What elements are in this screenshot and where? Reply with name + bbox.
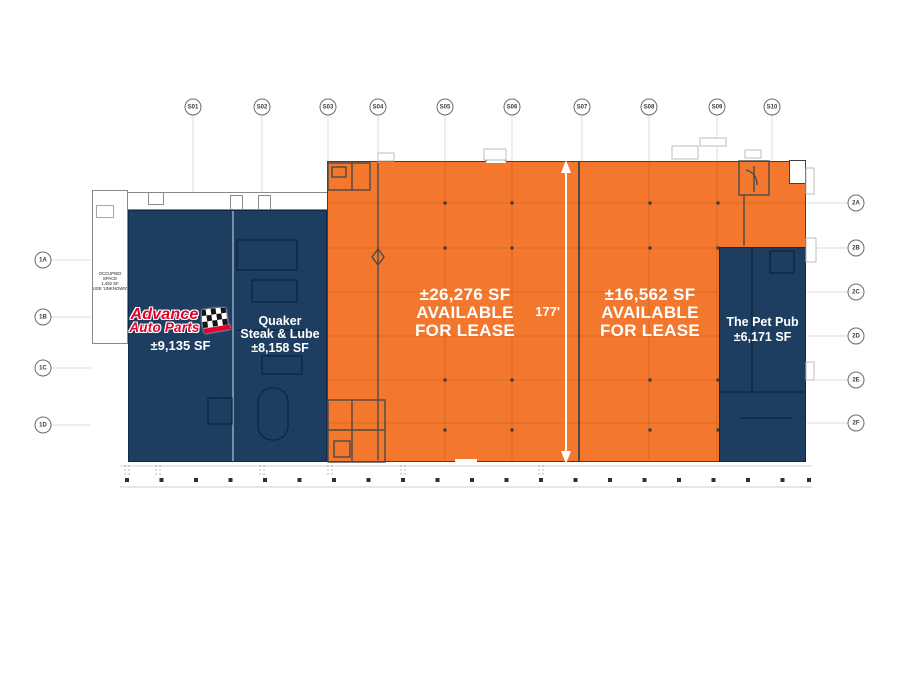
pet-pub-region xyxy=(719,247,806,462)
entry-vestibule xyxy=(148,192,164,205)
grid-marker-1B: 1B xyxy=(35,309,52,326)
grid-marker-S08: S08 xyxy=(641,99,658,116)
corner-utility-room xyxy=(789,160,806,184)
tenant-label-quaker: Quaker Steak & Lube ±8,158 SF xyxy=(233,315,327,355)
annex-detail xyxy=(96,205,114,218)
grid-marker-S05: S05 xyxy=(437,99,454,116)
grid-marker-2D: 2D xyxy=(848,328,865,345)
grid-marker-2C: 2C xyxy=(848,284,865,301)
grid-marker-2F: 2F xyxy=(848,415,865,432)
entry-vestibule xyxy=(230,195,243,210)
checkered-flag-icon xyxy=(202,308,232,334)
grid-marker-S01: S01 xyxy=(185,99,202,116)
grid-marker-S07: S07 xyxy=(574,99,591,116)
grid-marker-1D: 1D xyxy=(35,417,52,434)
grid-marker-S10: S10 xyxy=(764,99,781,116)
grid-marker-S04: S04 xyxy=(370,99,387,116)
entry-vestibule xyxy=(258,195,271,210)
grid-marker-1C: 1C xyxy=(35,360,52,377)
tenant-label-advance-auto-parts: Advance Auto Parts ±9,135 SF xyxy=(128,306,233,353)
grid-marker-S06: S06 xyxy=(504,99,521,116)
grid-marker-S02: S02 xyxy=(254,99,271,116)
advance-auto-parts-logo: Advance Auto Parts xyxy=(129,307,199,334)
grid-marker-2A: 2A xyxy=(848,195,865,212)
advance-area: ±9,135 SF xyxy=(128,338,233,353)
tenant-label-pet-pub: The Pet Pub ±6,171 SF xyxy=(719,316,806,344)
grid-marker-2E: 2E xyxy=(848,372,865,389)
grid-marker-S03: S03 xyxy=(320,99,337,116)
grid-marker-1A: 1A xyxy=(35,252,52,269)
grid-marker-2B: 2B xyxy=(848,240,865,257)
grid-marker-S09: S09 xyxy=(709,99,726,116)
floor-plan-canvas: OCCUPIED SPACE 1,492 SF USE 'UNKNOWN' Ad… xyxy=(0,0,900,695)
annex-note: OCCUPIED SPACE 1,492 SF USE 'UNKNOWN' xyxy=(91,272,128,292)
